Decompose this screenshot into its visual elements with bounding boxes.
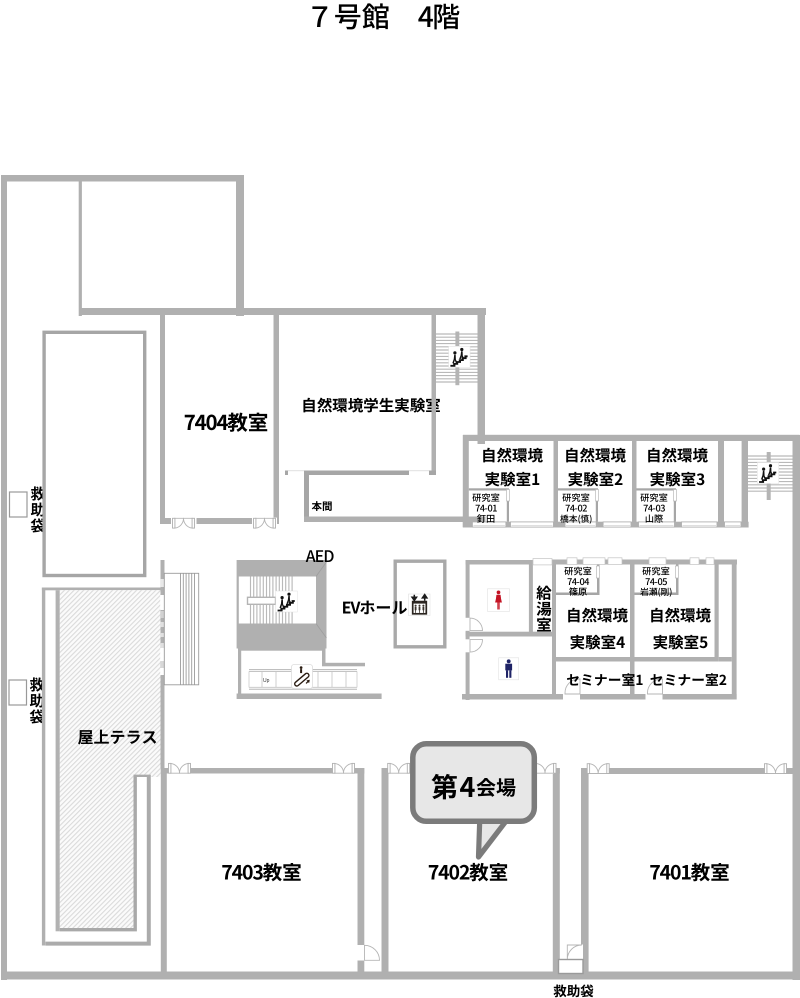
- svg-text:Up: Up: [263, 678, 270, 684]
